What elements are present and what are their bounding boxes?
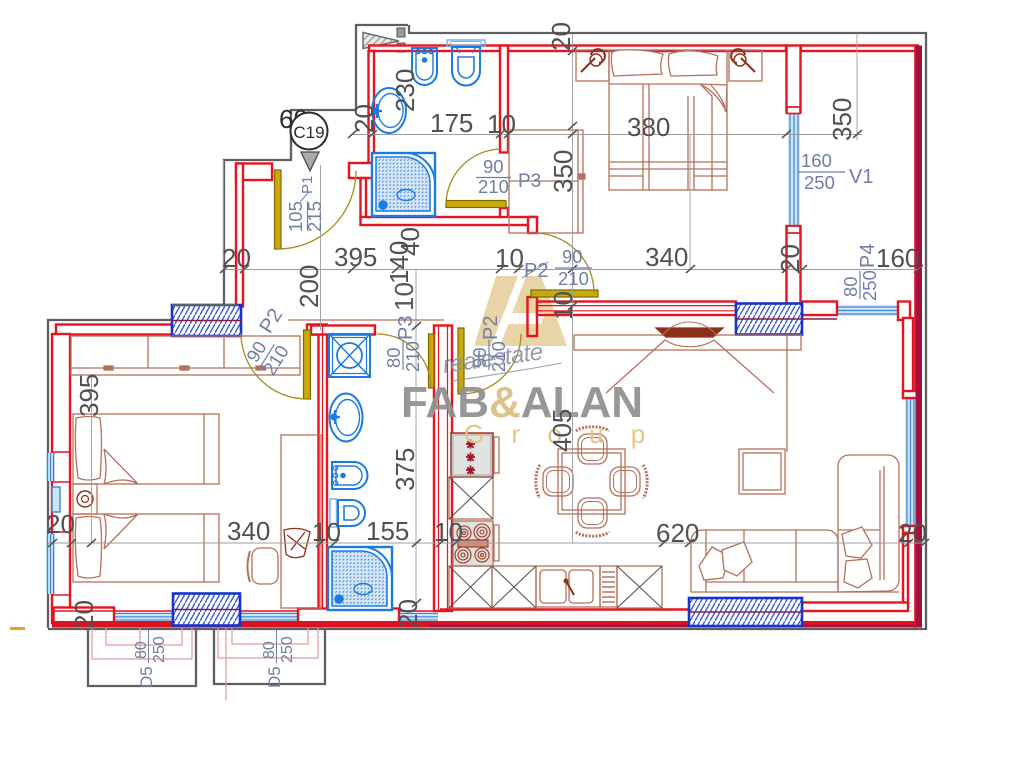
svg-text:155: 155 [366,516,409,546]
svg-text:40: 40 [395,227,425,256]
svg-text:P2: P2 [524,260,548,282]
svg-text:250: 250 [151,636,168,663]
svg-text:20: 20 [546,22,576,51]
svg-text:20: 20 [775,244,805,273]
svg-text:175: 175 [430,108,473,138]
svg-text:20: 20 [898,518,927,548]
svg-text:90: 90 [562,246,583,267]
svg-text:200: 200 [294,265,324,308]
svg-text:160: 160 [876,243,919,273]
svg-text:P3: P3 [395,316,417,340]
svg-text:210: 210 [402,341,423,372]
svg-text:10: 10 [495,243,524,273]
svg-text:20: 20 [349,104,379,133]
svg-text:20: 20 [222,243,251,273]
svg-text:395: 395 [334,242,377,272]
svg-text:90: 90 [469,347,490,368]
svg-text:80: 80 [133,641,150,659]
svg-text:20: 20 [69,600,99,629]
svg-text:105: 105 [285,201,306,232]
svg-text:P4: P4 [857,244,879,268]
svg-text:80: 80 [383,347,404,368]
svg-text:395: 395 [74,374,104,417]
svg-text:215: 215 [304,201,325,232]
svg-text:375: 375 [390,448,420,491]
svg-text:230: 230 [390,69,420,112]
svg-text:350: 350 [548,150,578,193]
svg-text:90: 90 [483,156,504,177]
svg-text:10: 10 [487,109,516,139]
svg-text:210: 210 [488,341,509,372]
svg-text:P2: P2 [480,316,502,340]
svg-text:10: 10 [312,517,341,547]
svg-text:340: 340 [645,242,688,272]
svg-text:20: 20 [46,509,75,539]
svg-text:160: 160 [801,150,832,171]
svg-text:D5: D5 [265,666,284,688]
svg-text:210: 210 [558,268,589,289]
svg-text:350: 350 [827,98,857,141]
svg-text:250: 250 [804,172,835,193]
svg-text:80: 80 [261,641,278,659]
svg-text:340: 340 [227,516,270,546]
svg-text:405: 405 [547,409,577,452]
svg-text:D5: D5 [137,666,156,688]
svg-text:10: 10 [434,517,463,547]
svg-text:20: 20 [393,599,423,628]
svg-text:80: 80 [840,276,861,297]
svg-text:250: 250 [859,270,880,301]
svg-text:10: 10 [548,291,578,320]
svg-text:380: 380 [627,112,670,142]
svg-text:620: 620 [656,518,699,548]
svg-text:210: 210 [478,176,509,197]
svg-text:10: 10 [389,282,419,311]
svg-text:250: 250 [279,636,296,663]
svg-text:C19: C19 [293,123,324,142]
svg-text:P1: P1 [299,176,316,194]
svg-text:V1: V1 [849,166,873,188]
svg-text:P3: P3 [518,171,541,192]
